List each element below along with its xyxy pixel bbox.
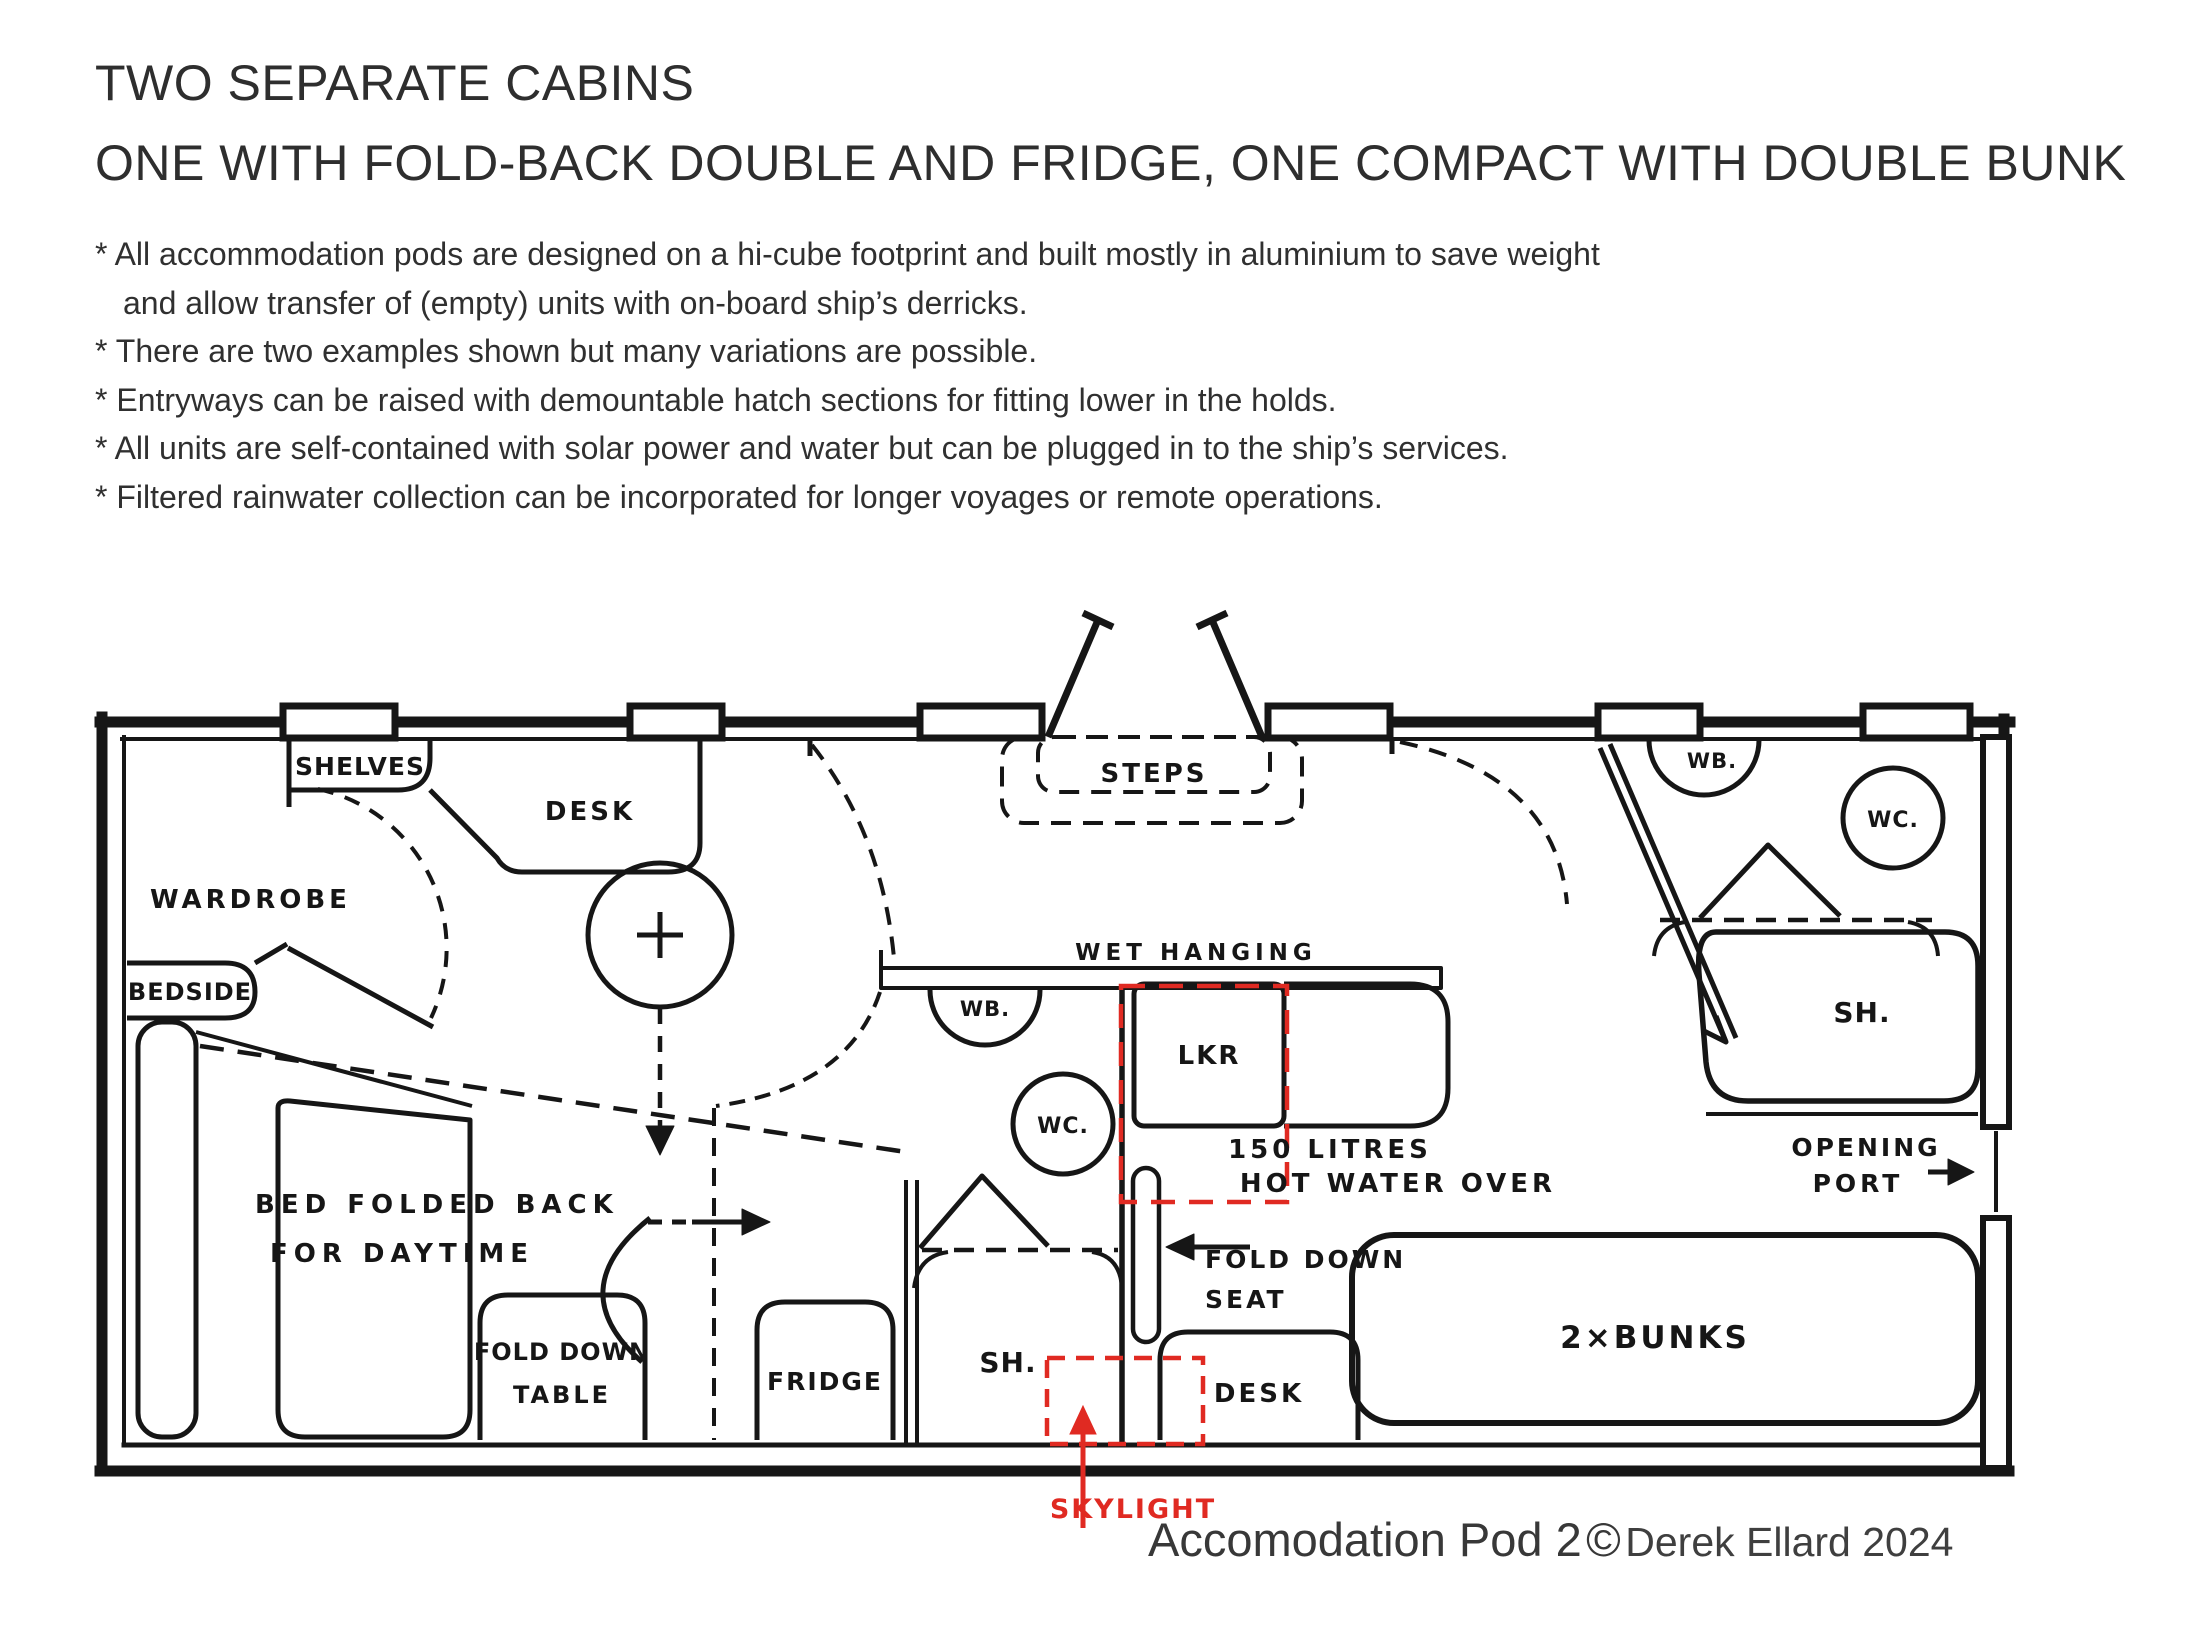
label-sh-right: SH. <box>1833 996 1890 1029</box>
shower-corner-right-b <box>1908 922 1938 956</box>
copyright-icon: © <box>1586 1513 1621 1566</box>
label-port: PORT <box>1813 1169 1904 1198</box>
hot-water-tank <box>1284 984 1448 1126</box>
cabin1-fixtures <box>127 739 906 1440</box>
label-wb-right: WB. <box>1687 749 1737 773</box>
label-hot-water: HOT WATER OVER <box>1240 1169 1556 1199</box>
label-fold-table-2: TABLE <box>513 1381 611 1409</box>
label-bed-folded-2: FOR DAYTIME <box>270 1239 534 1269</box>
label-litres: 150 LITRES <box>1228 1135 1432 1165</box>
caption-title: Accomodation Pod 2 <box>1148 1513 1582 1566</box>
shower-bifold-door <box>920 1176 1048 1248</box>
label-wet-hanging: WET HANGING <box>1075 940 1317 966</box>
label-desk1: DESK <box>545 797 635 827</box>
door-swing-arc-left <box>812 745 894 958</box>
label-fold-seat-2: SEAT <box>1205 1285 1287 1314</box>
arrow-right-head <box>742 1209 770 1235</box>
hatch-rect <box>630 706 722 738</box>
folded-mattress <box>138 1022 196 1437</box>
label-wardrobe: WARDROBE <box>150 885 351 915</box>
shower-corner-left <box>914 1252 948 1288</box>
fold-table-box <box>480 1295 645 1440</box>
label-bedside: BEDSIDE <box>128 978 252 1006</box>
handrail-right <box>1197 613 1262 737</box>
label-fridge: FRIDGE <box>767 1367 883 1396</box>
shower-door-frame <box>1133 1168 1159 1342</box>
hatch-rect <box>1598 706 1700 738</box>
caption-author: Derek Ellard 2024 <box>1625 1519 1953 1565</box>
floor-plan: STEPS SHELVES DESK WARDROBE <box>0 0 2200 1650</box>
label-fold-table-1: FOLD DOWN <box>474 1338 650 1366</box>
label-bed-folded-1: BED FOLDED BACK <box>255 1190 619 1220</box>
hatch-rect <box>1268 706 1390 738</box>
hatch-rect <box>920 706 1042 738</box>
sliding-door <box>1600 744 1736 1042</box>
label-sh-mid: SH. <box>979 1346 1036 1379</box>
label-bunks: 2×BUNKS <box>1560 1320 1750 1356</box>
label-lkr: LKR <box>1178 1041 1241 1071</box>
label-desk2: DESK <box>1214 1379 1304 1409</box>
label-shelves: SHELVES <box>295 752 425 781</box>
wardrobe-door <box>255 944 433 1027</box>
wet-arc <box>716 992 880 1106</box>
label-wc-right: WC. <box>1867 808 1919 833</box>
handrail-left <box>1048 613 1113 737</box>
label-opening: OPENING <box>1791 1133 1940 1162</box>
label-wc-mid: WC. <box>1037 1114 1089 1139</box>
shower-corner-right <box>1092 1252 1122 1288</box>
label-fold-seat-1: FOLD DOWN <box>1205 1245 1406 1274</box>
label-steps: STEPS <box>1100 759 1207 789</box>
hatch-rect <box>283 706 395 738</box>
skylight-box <box>1047 1358 1203 1444</box>
skylight-arrow-head <box>1070 1406 1096 1434</box>
ceiling-light-cross <box>637 912 683 958</box>
wall-right-lower-bar <box>1983 1218 2009 1468</box>
seat-arrow-head <box>1166 1234 1194 1260</box>
arrow-down <box>646 1126 674 1155</box>
caption: Accomodation Pod 2 © Derek Ellard 2024 <box>1148 1512 2048 1567</box>
hatch-rect <box>1863 706 1970 738</box>
wall-right-upper-bar <box>1983 737 2009 1127</box>
bifold-door-right <box>1700 845 1840 918</box>
bed-fold-line <box>196 1032 472 1106</box>
page: TWO SEPARATE CABINS ONE WITH FOLD-BACK D… <box>0 0 2200 1650</box>
shower-partition <box>906 1180 917 1443</box>
door-swing-arc-right <box>1400 742 1567 904</box>
opening-port-arrow-head <box>1948 1159 1974 1185</box>
label-wb-mid: WB. <box>960 997 1010 1021</box>
